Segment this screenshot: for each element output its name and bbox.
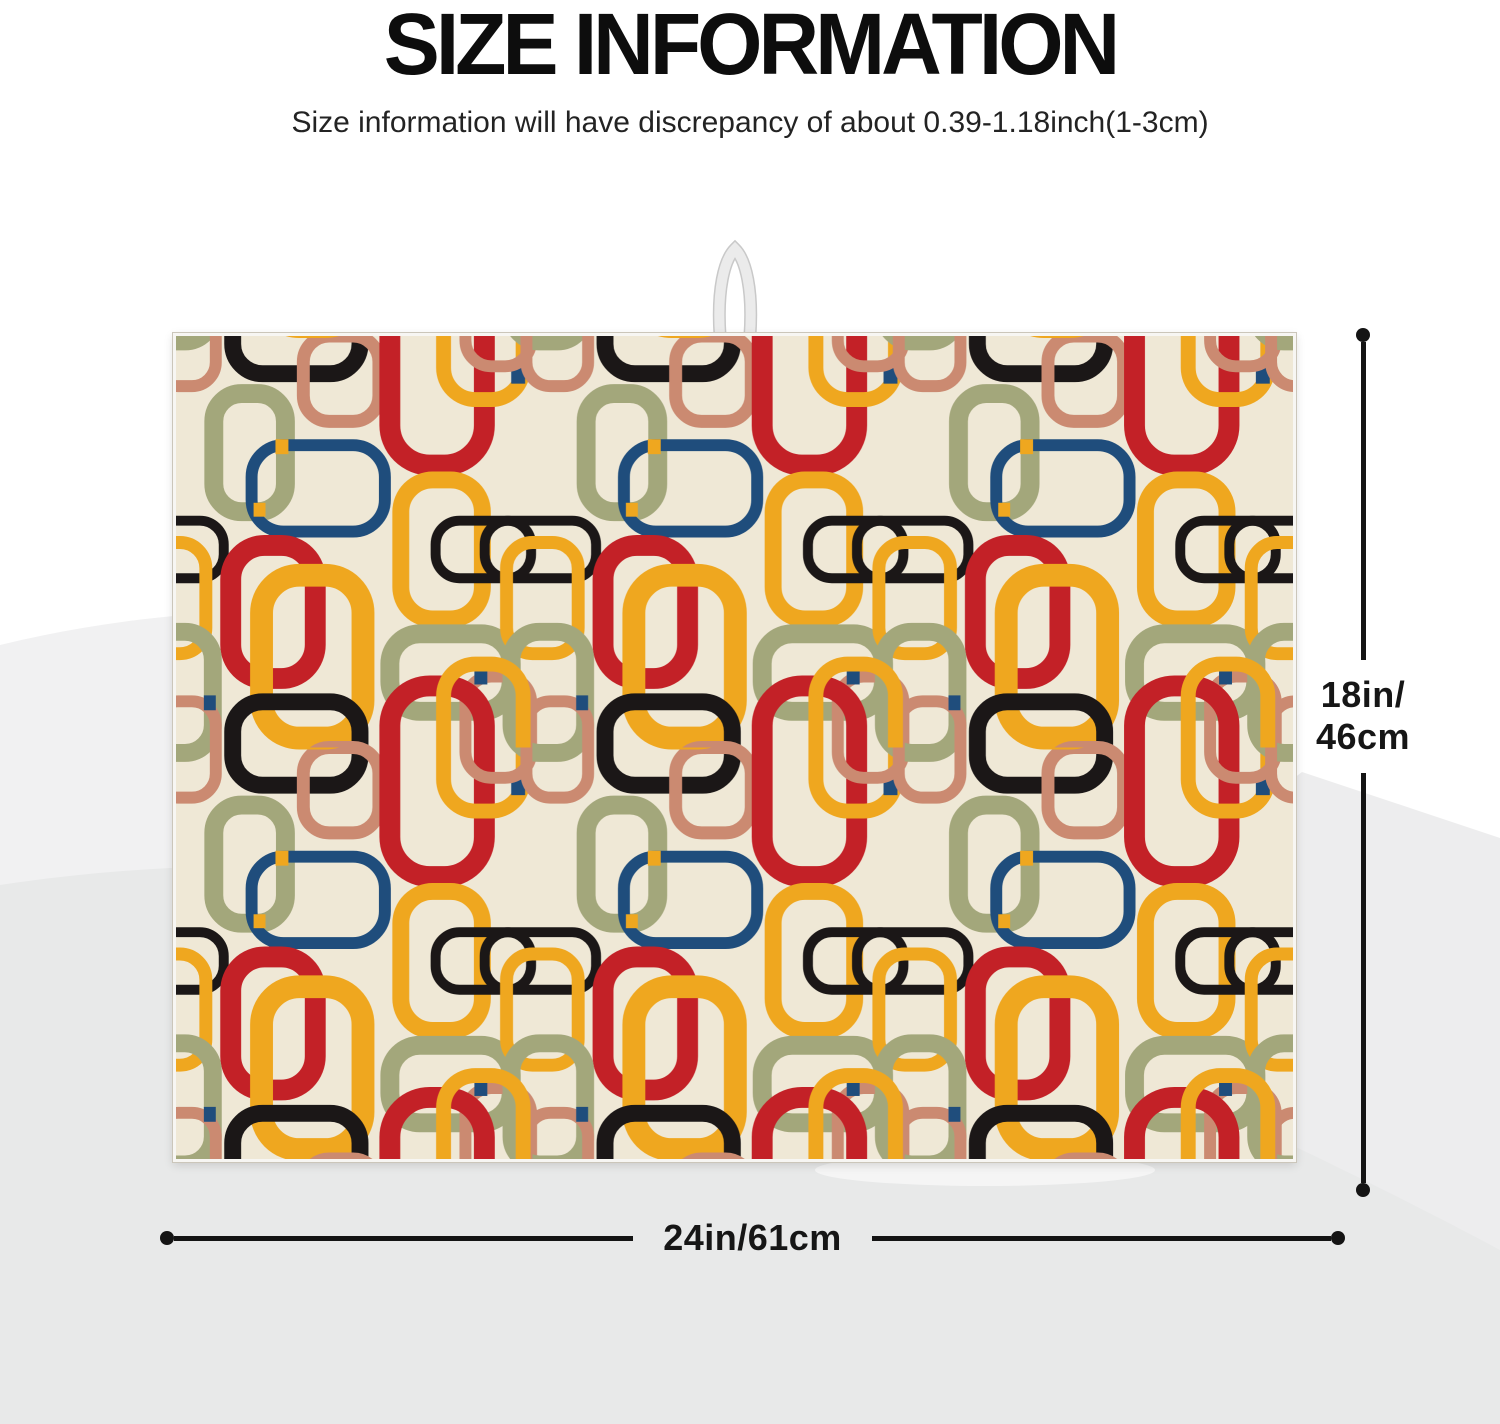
dimension-endpoint-dot: [160, 1231, 174, 1245]
mat-pattern: [176, 336, 1293, 1159]
dimension-endpoint-dot: [1356, 1183, 1370, 1197]
width-dimension: 24in/61cm: [160, 1217, 1345, 1259]
product-mat: [173, 333, 1296, 1162]
dimension-endpoint-dot: [1356, 328, 1370, 342]
hanging-loop-icon: [700, 238, 770, 338]
dimension-endpoint-dot: [1331, 1231, 1345, 1245]
height-dimension: 18in/ 46cm: [1303, 328, 1423, 1197]
page-subtitle: Size information will have discrepancy o…: [0, 106, 1500, 140]
width-dimension-line-left: [174, 1236, 633, 1241]
width-dimension-line-right: [872, 1236, 1331, 1241]
height-label-inches: 18in/: [1321, 674, 1406, 715]
height-dimension-line-bottom: [1361, 773, 1366, 1183]
height-label-cm: 46cm: [1316, 716, 1410, 757]
page-title: SIZE INFORMATION: [0, 0, 1500, 87]
width-dimension-label: 24in/61cm: [663, 1217, 842, 1259]
height-dimension-line-top: [1361, 342, 1366, 660]
header: SIZE INFORMATION Size information will h…: [0, 0, 1500, 140]
height-dimension-label: 18in/ 46cm: [1316, 674, 1410, 759]
